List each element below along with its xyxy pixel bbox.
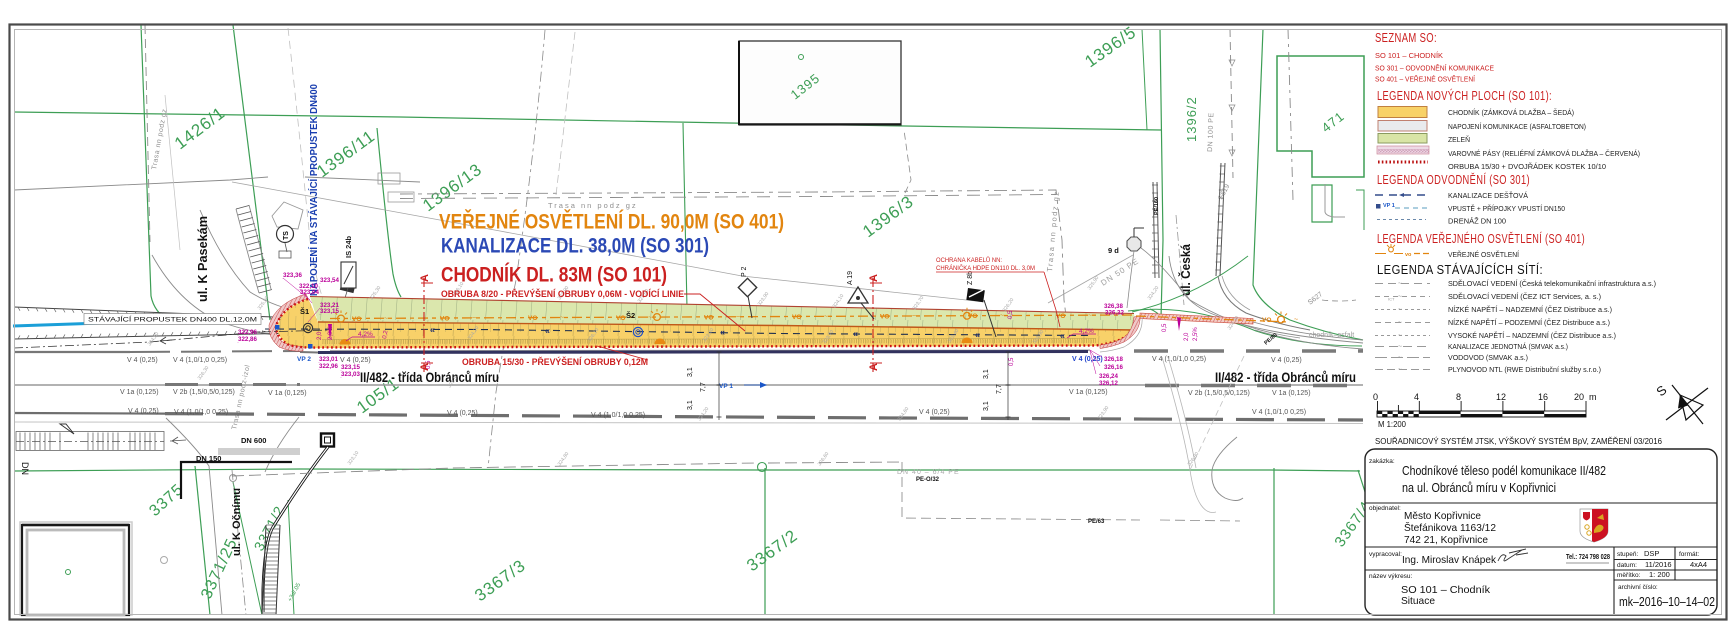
svg-text:VYSOKÉ NAPĚTÍ – NADZEMNÍ (ČEZ: VYSOKÉ NAPĚTÍ – NADZEMNÍ (ČEZ Distribuce… [1448,331,1616,340]
svg-text:V 1a (0,125): V 1a (0,125) [1069,389,1108,396]
svg-text:Situace: Situace [1401,595,1435,607]
svg-text:formát:: formát: [1679,551,1699,558]
svg-text:2,0: 2,0 [317,331,323,340]
svg-text:1: 200: 1: 200 [1649,570,1670,579]
svg-text:SO 101 – CHODNÍK: SO 101 – CHODNÍK [1375,51,1443,60]
svg-text:II/482 - třída Obránců míru: II/482 - třída Obránců míru [360,370,499,385]
svg-text:V 4 (1,0/1,0 0,25): V 4 (1,0/1,0 0,25) [173,357,227,364]
svg-text:VPUSTĚ + PŘÍPOJKY VPUSTÍ DN150: VPUSTĚ + PŘÍPOJKY VPUSTÍ DN150 [1448,204,1565,213]
svg-text:VO: VO [352,316,361,323]
svg-text:V 2b (1,5/0,5/0,125): V 2b (1,5/0,5/0,125) [173,389,235,396]
svg-text:SEZNAM SO:: SEZNAM SO: [1375,31,1437,45]
svg-text:3,1: 3,1 [687,400,694,410]
svg-text:V 4 (0,25): V 4 (0,25) [447,410,478,417]
svg-text:326,32: 326,32 [1105,310,1124,317]
svg-text:4xA4: 4xA4 [1690,560,1707,569]
svg-text:322,86: 322,86 [238,336,257,343]
svg-text:~: ~ [1398,333,1402,340]
svg-text:326,18: 326,18 [1104,356,1123,363]
svg-text:DRENÁŽ DN 100: DRENÁŽ DN 100 [1448,217,1506,226]
svg-text:323,54: 323,54 [320,277,339,284]
svg-text:archivní číslo:: archivní číslo: [1618,584,1658,591]
svg-text:326,24: 326,24 [1099,373,1118,380]
svg-text:vo: vo [1405,252,1412,258]
svg-text:1396/2: 1396/2 [1184,96,1199,142]
svg-text:Trasa nn podz gz: Trasa nn podz gz [548,201,638,210]
svg-text:II/482 - třída Obránců míru: II/482 - třída Obránců míru [1215,370,1356,385]
svg-text:V 4 (1,0/1,0 0,25): V 4 (1,0/1,0 0,25) [1252,409,1306,416]
svg-text:PE-O/32: PE-O/32 [916,477,940,483]
svg-text:12: 12 [1496,392,1506,402]
svg-text:Chodníkové těleso podél komuni: Chodníkové těleso podél komunikace II/48… [1402,463,1606,478]
svg-text:323,01: 323,01 [319,356,338,363]
svg-text:DSP: DSP [1644,549,1659,558]
svg-text:V 4 (0,25): V 4 (0,25) [127,357,158,364]
svg-text:m: m [1589,392,1597,402]
svg-text:«: « [1060,330,1065,340]
svg-text:LEGENDA VEŘEJNÉHO OSVĚTLENÍ (S: LEGENDA VEŘEJNÉHO OSVĚTLENÍ (SO 401) [1377,231,1585,246]
svg-text:«: « [720,327,725,337]
svg-text:VO: VO [528,315,537,322]
svg-text:«: « [430,325,435,335]
svg-text:CHRÁNIČKA HDPE DN110 DL. 3,0M: CHRÁNIČKA HDPE DN110 DL. 3,0M [936,263,1035,272]
svg-text:na ul. Obránců míru v Kopřivni: na ul. Obránců míru v Kopřivnici [1402,480,1556,495]
svg-text:VP 1: VP 1 [719,383,733,390]
svg-text:datum:: datum: [1617,562,1637,569]
svg-text:~: ~ [384,315,388,322]
svg-text:Štefánikova 1163/12: Štefánikova 1163/12 [1404,521,1496,534]
svg-text:«: « [853,328,858,338]
svg-text:VO: VO [704,314,713,321]
svg-text:SDĚLOVACÍ VEDENÍ (Česká teleko: SDĚLOVACÍ VEDENÍ (Česká telekomunikační … [1448,279,1656,288]
svg-text:ul. K Očnímu: ul. K Očnímu [231,488,243,556]
svg-text:V 1a (0,125): V 1a (0,125) [120,389,159,396]
svg-text:A 19: A 19 [847,271,854,285]
svg-text:DN 600: DN 600 [241,436,266,445]
svg-text:ORBUBA 15/30 + DVOJŘÁDEK KOSTE: ORBUBA 15/30 + DVOJŘÁDEK KOSTEK 10/10 [1448,162,1606,171]
svg-text:V 4 (0,25): V 4 (0,25) [340,357,371,364]
svg-text:LEGENDA ODVODNĚNÍ (SO 301): LEGENDA ODVODNĚNÍ (SO 301) [1377,172,1530,187]
svg-text:název výkresu:: název výkresu: [1369,573,1413,580]
svg-text:CHODNÍK DL. 83M (SO 101): CHODNÍK DL. 83M (SO 101) [441,264,667,287]
svg-text:mk–2016–10–14–02: mk–2016–10–14–02 [1619,594,1715,609]
svg-text:DN: DN [20,462,30,475]
svg-text:VODOVOD (SMVAK a.s.): VODOVOD (SMVAK a.s.) [1448,355,1528,362]
svg-text:V 2b (1,5/0,5/0,125): V 2b (1,5/0,5/0,125) [1188,390,1250,397]
svg-text:Město Kopřivnice: Město Kopřivnice [1404,510,1481,522]
svg-text:stupeň:: stupeň: [1617,551,1639,558]
svg-text:~: ~ [1398,355,1402,362]
svg-text:3,1: 3,1 [687,367,694,377]
svg-text:322,96: 322,96 [238,329,257,336]
svg-text:NÍZKÉ NAPĚTÍ – PODZEMNÍ (ČEZ D: NÍZKÉ NAPĚTÍ – PODZEMNÍ (ČEZ Distribuce … [1448,318,1610,327]
svg-text:DN 40 – 6/4 PE: DN 40 – 6/4 PE [897,469,960,476]
svg-text:20: 20 [1574,392,1584,402]
svg-text:NAPOJENÍ NA STÁVAJÍCÍ PROPUSTE: NAPOJENÍ NA STÁVAJÍCÍ PROPUSTEK DN400 [307,84,320,296]
svg-text:V 4 (0,25): V 4 (0,25) [919,409,950,416]
svg-text:3,1: 3,1 [983,401,990,411]
svg-text:VO: VO [880,314,889,321]
svg-text:M 1:200: M 1:200 [1378,419,1406,429]
svg-text:«: « [975,330,980,340]
svg-text:~: ~ [824,313,828,320]
svg-text:323,15: 323,15 [341,364,360,371]
svg-text:IS 24b: IS 24b [344,235,353,258]
svg-text:Ing. Miroslav Knápek: Ing. Miroslav Knápek [1402,554,1497,566]
svg-text:~: ~ [1294,317,1298,324]
svg-text:ul. K Pasekám: ul. K Pasekám [195,216,210,302]
svg-text:STÁVAJÍCÍ PROPUSTEK DN400 DL.1: STÁVAJÍCÍ PROPUSTEK DN400 DL.12,0M [88,315,257,324]
svg-text:323,36: 323,36 [283,272,302,279]
svg-text:7,7: 7,7 [996,384,1003,394]
svg-text:0,5: 0,5 [1162,323,1168,332]
svg-text:KANALIZACE DEŠŤOVÁ: KANALIZACE DEŠŤOVÁ [1448,191,1528,200]
svg-text:měřítko:: měřítko: [1617,572,1641,579]
svg-text:V 4 (0,25): V 4 (0,25) [1072,356,1103,363]
svg-text:DN 100 PE: DN 100 PE [1207,112,1215,152]
svg-text:LEGENDA NOVÝCH PLOCH (SO 101):: LEGENDA NOVÝCH PLOCH (SO 101): [1377,88,1552,103]
svg-text:VP 1: VP 1 [1383,203,1395,209]
svg-text:«: « [545,325,550,335]
svg-text:zakázka:: zakázka: [1369,458,1395,465]
svg-text:NÍZKÉ NAPĚTÍ – NADZEMNÍ (ČEZ D: NÍZKÉ NAPĚTÍ – NADZEMNÍ (ČEZ Distribuce … [1448,305,1612,314]
svg-text:PLYNOVOD NTL (RWE Distribuční: PLYNOVOD NTL (RWE Distribuční služby s.r… [1448,367,1601,374]
svg-text:16: 16 [1538,392,1548,402]
svg-text:CHODNÍK (ZÁMKOVÁ DLAŽBA – ŠEDÁ: CHODNÍK (ZÁMKOVÁ DLAŽBA – ŠEDÁ) [1448,108,1574,117]
svg-text:P 2: P 2 [741,267,748,277]
svg-text:0,5: 0,5 [1008,310,1014,319]
svg-text:ICT: ICT [1388,297,1395,302]
svg-text:SDĚLOVACÍ VEDENÍ (ČEZ ICT Serv: SDĚLOVACÍ VEDENÍ (ČEZ ICT Services, a. s… [1448,292,1601,301]
svg-text:V 4 (1,0/1,0 0,25): V 4 (1,0/1,0 0,25) [591,412,645,419]
svg-text:0,5: 0,5 [1009,357,1015,366]
svg-text:2,0: 2,0 [1184,332,1190,341]
svg-text:~: ~ [1398,294,1402,301]
svg-text:~: ~ [560,315,564,322]
svg-text:Tel.: 724 798 028: Tel.: 724 798 028 [1566,552,1610,561]
svg-text:V 4 (1,0/1,0 0,25): V 4 (1,0/1,0 0,25) [1152,356,1206,363]
svg-text:PE/63: PE/63 [1088,519,1105,525]
svg-text:V 4 (1,0/1,0 0,25): V 4 (1,0/1,0 0,25) [174,409,228,416]
svg-text:3,1: 3,1 [983,369,990,379]
svg-text:VEŘEJNÉ OSVĚTLENÍ DL. 90,0M (S: VEŘEJNÉ OSVĚTLENÍ DL. 90,0M (SO 401) [439,210,784,234]
svg-text:~: ~ [1088,312,1092,319]
svg-text:SO 301 – ODVODNĚNÍ KOMUNIKACE: SO 301 – ODVODNĚNÍ KOMUNIKACE [1375,64,1494,73]
svg-text:SO 401 – VEŘEJNÉ OSVĚTLENÍ: SO 401 – VEŘEJNÉ OSVĚTLENÍ [1375,75,1475,84]
svg-text:2,0%: 2,0% [328,326,334,340]
svg-text:A: A [868,274,880,282]
svg-text:Z 8b: Z 8b [967,271,974,285]
svg-text:A: A [419,274,431,282]
svg-text:742 21, Kopřivnice: 742 21, Kopřivnice [1404,534,1488,546]
svg-text:9 d: 9 d [1108,246,1119,255]
svg-text:A: A [419,363,431,371]
svg-text:Š1: Š1 [300,307,309,316]
svg-text:TS: TS [283,231,290,240]
svg-text:11/2016: 11/2016 [1645,560,1672,569]
svg-text:326,16: 326,16 [1104,364,1123,371]
svg-text:OCHRANA KABELŮ NN:: OCHRANA KABELŮ NN: [936,255,1002,264]
svg-text:V 4 (0,25): V 4 (0,25) [128,408,159,415]
svg-text:VO: VO [616,315,625,322]
svg-text:Š2: Š2 [626,311,635,320]
svg-text:OBRUBA 15/30 - PŘEVÝŠENÍ OBRUB: OBRUBA 15/30 - PŘEVÝŠENÍ OBRUBY 0,12M [462,356,648,368]
svg-text:~: ~ [1398,281,1402,288]
svg-text:V 1a (0,125): V 1a (0,125) [268,390,307,397]
svg-text:~: ~ [736,314,740,321]
svg-text:~: ~ [1398,307,1402,314]
svg-text:~: ~ [912,313,916,320]
svg-text:vypracoval:: vypracoval: [1369,551,1402,558]
svg-text:KANALIZACE JEDNOTNÁ (SMVAK a.s: KANALIZACE JEDNOTNÁ (SMVAK a.s.) [1448,342,1568,351]
svg-text:NAPOJENÍ KOMUNIKACE (ASFALTOBE: NAPOJENÍ KOMUNIKACE (ASFALTOBETON) [1448,122,1586,131]
svg-text:LEGENDA STÁVAJÍCÍCH SÍTÍ:: LEGENDA STÁVAJÍCÍCH SÍTÍ: [1377,262,1543,277]
svg-text:chodník–asfalt: chodník–asfalt [1309,332,1354,339]
svg-text:7,7: 7,7 [700,382,707,392]
svg-text:0: 0 [1373,392,1378,402]
svg-text:VO: VO [792,314,801,321]
svg-text:4: 4 [1414,392,1419,402]
svg-text:~: ~ [1398,320,1402,327]
svg-text:s: s [1426,149,1429,155]
svg-text:322,96: 322,96 [319,363,338,370]
svg-text:ZELEŇ: ZELEŇ [1448,135,1470,144]
svg-text:~: ~ [1398,367,1402,374]
svg-text:VO: VO [440,316,449,323]
svg-text:V 1a (0,125): V 1a (0,125) [1272,390,1311,397]
svg-text:V 4 (0,25): V 4 (0,25) [1271,357,1302,364]
svg-text:~: ~ [472,315,476,322]
svg-text:VP 2: VP 2 [297,356,311,363]
svg-text:OBRUBA 8/20 - PŘEVÝŠENÍ OBRUBY: OBRUBA 8/20 - PŘEVÝŠENÍ OBRUBY 0,06M - V… [441,288,684,300]
svg-text:SOUŘADNICOVÝ SYSTÉM JTSK, VÝŠK: SOUŘADNICOVÝ SYSTÉM JTSK, VÝŠKOVÝ SYSTÉM… [1375,436,1662,446]
svg-text:323,15: 323,15 [320,308,339,315]
svg-text:objednatel:: objednatel: [1369,505,1401,512]
svg-text:PE/160: PE/160 [1154,197,1160,215]
svg-text:VAROVNÉ PÁSY (RELIÉFNÍ ZÁMKOVÁ: VAROVNÉ PÁSY (RELIÉFNÍ ZÁMKOVÁ DLAŽBA – … [1448,149,1640,158]
svg-text:8: 8 [1456,392,1461,402]
svg-text:2,5%: 2,5% [1193,327,1199,341]
svg-text:~: ~ [648,314,652,321]
svg-text:~: ~ [1000,313,1004,320]
svg-text:VO: VO [1262,317,1271,324]
svg-text:A: A [868,363,880,371]
svg-text:KANALIZACE DL. 38,0M (SO 301): KANALIZACE DL. 38,0M (SO 301) [441,235,709,258]
svg-text:326,12: 326,12 [1099,380,1118,387]
svg-text:323,03: 323,03 [341,371,360,378]
svg-text:~: ~ [1398,344,1402,351]
svg-text:VEŘEJNÉ OSVĚTLENÍ: VEŘEJNÉ OSVĚTLENÍ [1448,250,1519,259]
